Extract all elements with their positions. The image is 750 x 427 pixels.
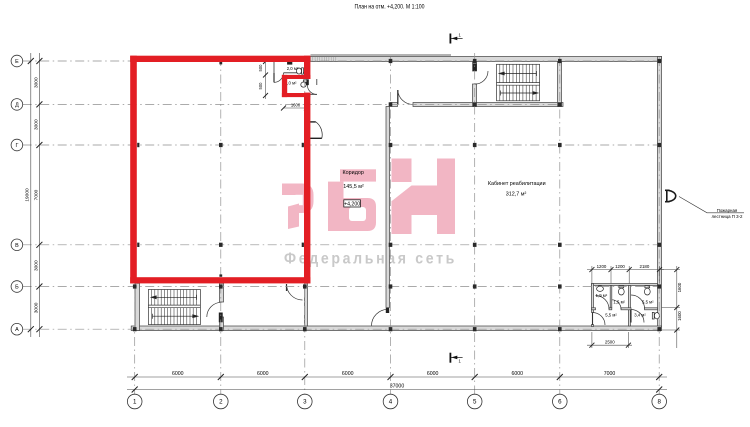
svg-text:лестница П 3-2: лестница П 3-2 — [712, 214, 744, 219]
svg-text:6000: 6000 — [342, 371, 354, 377]
svg-text:Коридор: Коридор — [343, 170, 364, 176]
svg-text:Г: Г — [15, 143, 18, 149]
svg-text:6000: 6000 — [427, 371, 439, 377]
svg-text:37000: 37000 — [390, 384, 405, 390]
svg-text:1,5 м²: 1,5 м² — [613, 300, 625, 305]
svg-text:+4,200: +4,200 — [344, 201, 360, 207]
svg-text:Б: Б — [15, 285, 19, 291]
svg-text:3,4 м²: 3,4 м² — [634, 313, 646, 318]
svg-text:Пожарная: Пожарная — [717, 208, 738, 213]
svg-text:19000: 19000 — [25, 188, 31, 202]
svg-text:1: 1 — [133, 399, 137, 406]
svg-text:5: 5 — [473, 399, 477, 406]
svg-text:6000: 6000 — [257, 371, 269, 377]
svg-text:1200: 1200 — [615, 264, 625, 269]
svg-text:В: В — [15, 243, 19, 249]
svg-text:500: 500 — [258, 82, 263, 90]
svg-text:312,7 м²: 312,7 м² — [506, 192, 527, 198]
svg-text:План на отм. +4,200. М 1:100: План на отм. +4,200. М 1:100 — [355, 5, 426, 11]
svg-text:5,5 м²: 5,5 м² — [642, 299, 654, 304]
svg-text:3000: 3000 — [33, 260, 39, 271]
svg-text:2,0 м²: 2,0 м² — [287, 66, 299, 71]
svg-text:4: 4 — [389, 399, 393, 406]
svg-text:3000: 3000 — [33, 119, 39, 130]
svg-text:1,9 м²: 1,9 м² — [596, 293, 608, 298]
svg-text:Е: Е — [15, 59, 19, 65]
svg-text:2: 2 — [219, 399, 223, 406]
svg-text:5,5 м²: 5,5 м² — [605, 313, 617, 318]
svg-text:Д: Д — [15, 102, 19, 108]
svg-text:А: А — [15, 327, 19, 333]
svg-text:2180: 2180 — [640, 264, 650, 269]
svg-text:6000: 6000 — [512, 371, 524, 377]
svg-text:7000: 7000 — [604, 371, 616, 377]
svg-text:1600: 1600 — [291, 102, 301, 107]
svg-text:Кабинет реабилитации: Кабинет реабилитации — [488, 181, 546, 187]
svg-text:145,5 м²: 145,5 м² — [343, 184, 364, 190]
svg-text:6: 6 — [558, 399, 562, 406]
svg-text:3000: 3000 — [33, 77, 39, 88]
svg-text:3: 3 — [303, 399, 307, 406]
svg-text:500: 500 — [258, 64, 263, 72]
svg-text:1600: 1600 — [677, 282, 682, 292]
svg-text:6000: 6000 — [172, 371, 184, 377]
svg-text:7000: 7000 — [33, 189, 39, 200]
svg-text:1200: 1200 — [597, 264, 607, 269]
svg-text:2500: 2500 — [605, 339, 615, 344]
svg-text:1600: 1600 — [677, 311, 682, 321]
svg-text:8: 8 — [657, 399, 661, 406]
svg-text:3000: 3000 — [33, 302, 39, 313]
